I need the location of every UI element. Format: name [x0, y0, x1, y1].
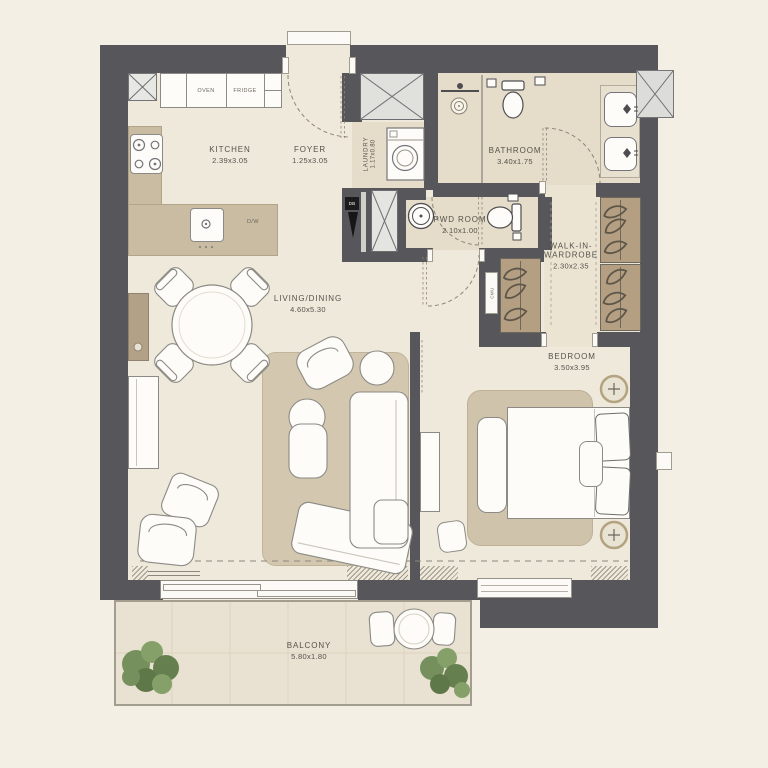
floor-plan: DB — [0, 0, 768, 768]
kitchen-sink-icon — [190, 208, 224, 242]
wall-foyer-shaft — [342, 73, 362, 122]
wardrobe-unit-right-top — [600, 197, 641, 263]
sliding-panel — [257, 590, 356, 597]
structural-column-icon — [128, 73, 157, 101]
wardrobe-label: WALK-IN- WARDROBE 2.30x2.35 — [544, 242, 598, 271]
wall-left — [100, 45, 128, 600]
foyer-name: FOYER — [292, 145, 328, 154]
wardrobe-rail — [520, 261, 521, 330]
bedroom-label: BEDROOM 3.50x3.95 — [548, 352, 596, 372]
pwd-room-label: PWD ROOM 2.10x1.00 — [434, 215, 487, 235]
floor-entry-gap — [286, 45, 350, 73]
cabinet-divider — [226, 74, 227, 107]
stove-icon — [130, 134, 163, 174]
wall-notch — [656, 452, 672, 470]
wardrobe-rail — [620, 200, 621, 260]
bedroom-name: BEDROOM — [548, 352, 596, 361]
sofa-rug — [262, 352, 409, 566]
vanity-sink-icon — [604, 137, 637, 171]
wall-living-bedroom — [410, 332, 420, 580]
vanity-sink-icon — [604, 92, 637, 127]
fridge-label: FRIDGE — [233, 88, 256, 94]
entry-door-jamb — [282, 57, 289, 74]
entry-mat — [287, 31, 351, 45]
distribution-board: DB — [345, 197, 359, 210]
sliding-door — [160, 580, 358, 599]
bedroom-dims: 3.50x3.95 — [548, 363, 596, 372]
wardrobe-name-line1: WALK-IN- — [544, 242, 598, 251]
window-glass-line — [481, 591, 568, 592]
wall-bath-bottom — [433, 183, 545, 197]
bed-cushion — [579, 441, 603, 487]
living-dining-name: LIVING/DINING — [274, 294, 342, 303]
bedroom-door-jamb — [479, 249, 485, 262]
living-dining-label: LIVING/DINING 4.60x5.30 — [274, 294, 342, 314]
bedroom-window — [477, 578, 572, 598]
wall-wardrobe-bottom-right — [597, 332, 640, 347]
wardrobe-unit-right-bottom — [600, 264, 641, 331]
laundry-name: LAUNDRY — [364, 137, 370, 172]
oven-label: OVEN — [197, 88, 214, 94]
curtain-rail — [148, 571, 200, 572]
wall-bottom-living-left — [128, 580, 163, 600]
entry-door-jamb — [349, 57, 356, 74]
wall-vanity-bottom — [596, 183, 640, 197]
wall-right-bedroom — [630, 345, 658, 600]
sill-hatch — [591, 566, 628, 580]
wardrobe-opening-jamb — [592, 333, 598, 347]
kitchen-name: KITCHEN — [209, 145, 250, 154]
sideboard — [128, 376, 159, 469]
wardrobe-unit-left — [500, 258, 541, 333]
bed-bench — [477, 417, 507, 513]
window-glass-line — [481, 585, 568, 586]
sill-hatch — [419, 566, 458, 580]
sideboard-line — [136, 379, 137, 466]
wall-laundry-bath — [424, 73, 438, 190]
bathroom-door-jamb — [539, 181, 546, 194]
curtain-rail — [148, 575, 200, 576]
living-dining-dims: 4.60x5.30 — [274, 305, 342, 314]
pwd-room-name: PWD ROOM — [434, 215, 487, 224]
wardrobe-dims: 2.30x2.35 — [544, 262, 598, 271]
balcony-label: BALCONY 5.80x1.80 — [287, 641, 332, 661]
kitchen-label: KITCHEN 2.39x3.05 — [209, 145, 250, 165]
laundry-label: LAUNDRY 1.17x0.80 — [364, 137, 377, 172]
laundry-dims: 1.17x0.80 — [371, 137, 377, 172]
sill-hatch — [132, 566, 148, 580]
utility-shaft-box — [371, 190, 398, 252]
pwd-room-dims: 2.10x1.00 — [434, 226, 487, 235]
duct-label: CMU — [489, 287, 494, 298]
kitchen-dims: 2.39x3.05 — [209, 156, 250, 165]
foyer-dims: 1.25x3.05 — [292, 156, 328, 165]
sill-hatch — [347, 566, 408, 580]
cabinet-divider — [186, 74, 187, 107]
dishwasher-label: D/W — [247, 219, 259, 225]
wall-bottom-living-right — [358, 580, 412, 600]
tv-console — [128, 293, 149, 361]
wall-top-right — [350, 45, 658, 73]
wardrobe-name-line2: WARDROBE — [544, 251, 598, 260]
foyer-label: FOYER 1.25x3.05 — [292, 145, 328, 165]
wardrobe-opening-jamb — [541, 333, 547, 347]
dressing-table — [420, 432, 440, 512]
balcony-dims: 5.80x1.80 — [287, 652, 332, 661]
bathroom-label: BATHROOM 3.40x1.75 — [489, 146, 542, 166]
balcony-name: BALCONY — [287, 641, 332, 650]
shaft-box — [360, 73, 424, 120]
bedroom-door-jamb — [427, 249, 433, 262]
wall-wardrobe-bottom-left — [479, 332, 546, 347]
bathroom-name: BATHROOM — [489, 146, 542, 155]
dressing-stool — [436, 519, 468, 554]
shaft-box-top-right — [636, 70, 674, 118]
bathroom-dims: 3.40x1.75 — [489, 157, 542, 166]
wall-bottom-right-block — [480, 600, 658, 628]
sliding-panel — [163, 584, 261, 591]
wardrobe-rail — [620, 267, 621, 328]
utility-bar — [361, 192, 366, 252]
cabinet-divider — [265, 90, 281, 91]
